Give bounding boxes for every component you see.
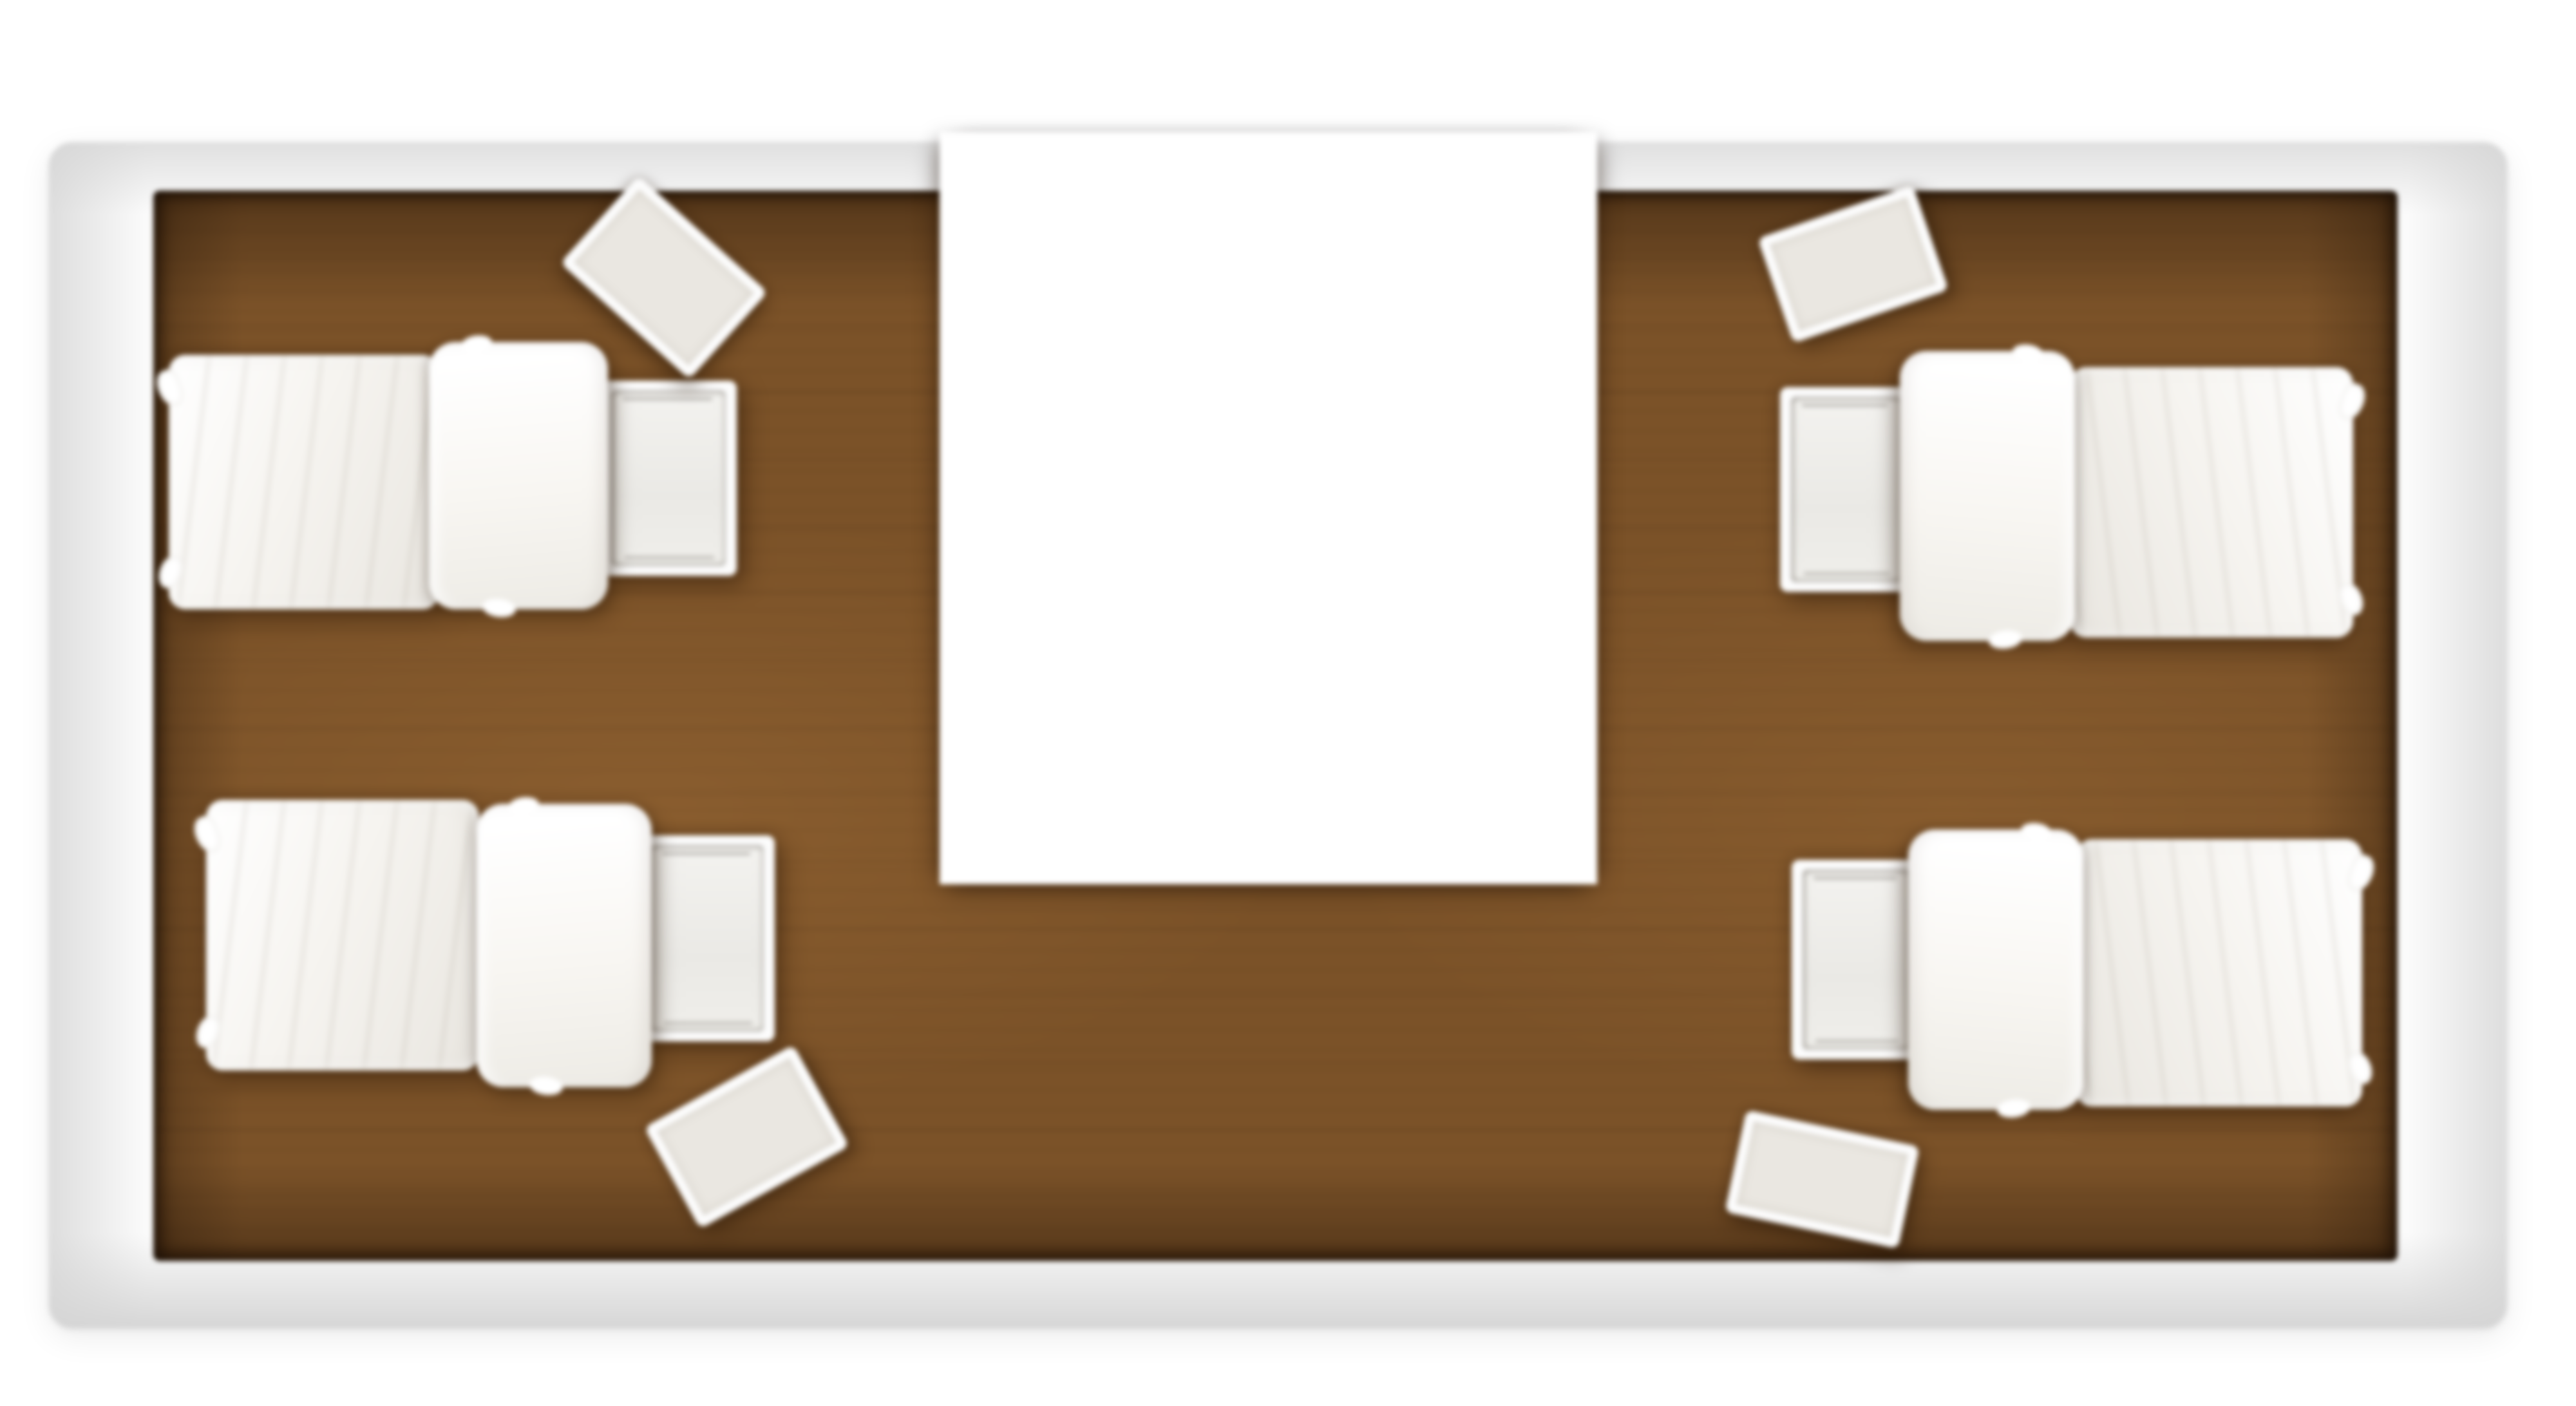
bed-top-right-footboard-inset xyxy=(1791,397,1901,582)
bed-top-left-duvet xyxy=(169,355,439,609)
bed-bottom-right-pillow xyxy=(1908,830,2083,1110)
bed-top-right-duvet xyxy=(2070,367,2353,638)
bed-top-left-footboard-inset xyxy=(611,390,726,566)
bed-bottom-left-duvet xyxy=(206,800,479,1070)
bed-top-right-footboard xyxy=(1780,387,1912,592)
room-render xyxy=(0,0,2576,1406)
bed-top-right-pillow xyxy=(1900,351,2075,641)
bed-bottom-right-duvet xyxy=(2076,839,2362,1107)
bed-top-left-pillow xyxy=(429,342,608,609)
bed-bottom-left-footboard xyxy=(639,835,775,1041)
floor-cutout xyxy=(940,132,1597,884)
bed-top-left-footboard xyxy=(600,381,737,576)
bed-bottom-left-footboard-inset xyxy=(650,845,764,1032)
bed-bottom-left-pillow xyxy=(477,804,652,1087)
scene xyxy=(0,0,2576,1406)
bed-bottom-right-footboard xyxy=(1792,860,1920,1059)
bed-bottom-right-footboard-inset xyxy=(1803,869,1909,1050)
